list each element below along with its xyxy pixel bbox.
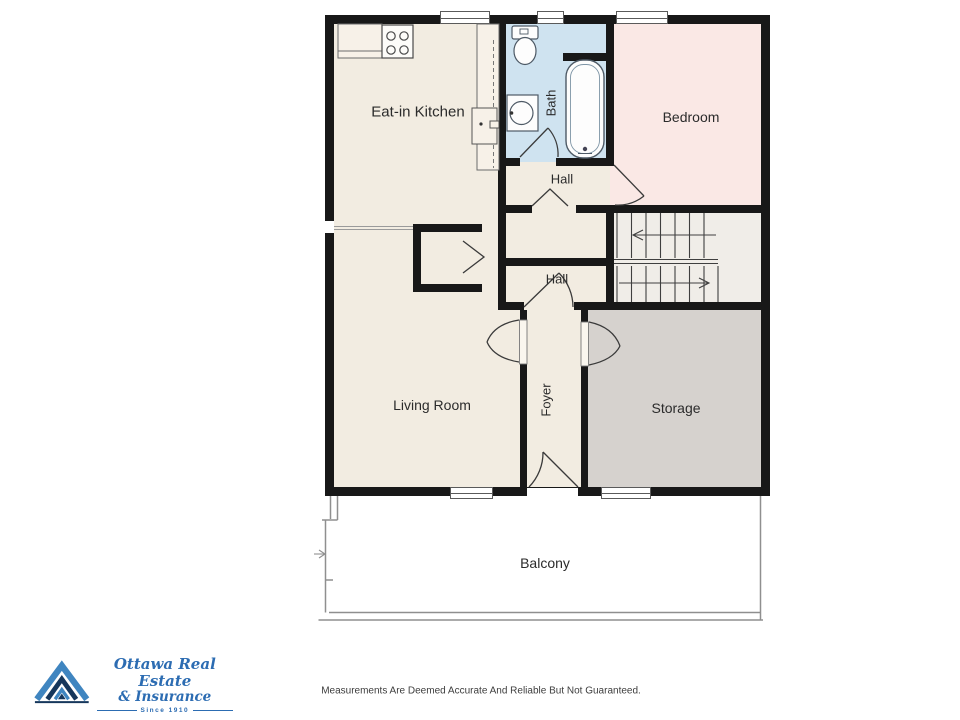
floor-storage (582, 306, 766, 492)
wall-foyer-left-a (520, 310, 527, 320)
room-label-storage: Storage (651, 400, 700, 416)
wall-outer-right (761, 15, 770, 496)
window-storage (601, 487, 651, 499)
wall-foyer-left-b (520, 364, 527, 496)
wall-foyer-right-b (581, 366, 588, 496)
wall-foyer-top-a (498, 302, 524, 310)
tagline-text: Since 1910 (141, 707, 190, 714)
window-bedroom (616, 11, 668, 24)
wall-landing-bottom (498, 258, 614, 266)
balcony-door-opening (527, 488, 578, 496)
window-living (450, 487, 493, 499)
wall-tub-top (563, 53, 614, 61)
room-label-hall-lower: Hall (546, 272, 568, 287)
brokerage-tagline: Since 1910 (97, 707, 233, 714)
wall-bath-bottom-b (556, 158, 614, 166)
wall-bath-bottom-a (498, 158, 520, 166)
wall-foyer-top-b (574, 302, 770, 310)
wall-hall-bedroom-a (498, 205, 532, 213)
room-label-balcony: Balcony (520, 555, 570, 571)
window-bath (537, 11, 564, 24)
wall-closet-left (413, 224, 421, 292)
room-label-bedroom: Bedroom (663, 109, 720, 125)
tagline-rule-right (193, 710, 233, 711)
floor-plan: Eat-in Kitchen Bath Bedroom Hall Hall Li… (0, 0, 960, 720)
wall-closet-top (413, 224, 482, 232)
room-label-foyer: Foyer (539, 383, 554, 416)
wall-closet-bottom (413, 284, 482, 292)
brokerage-name-line2: & Insurance (97, 690, 233, 705)
room-label-hall-upper: Hall (551, 172, 573, 187)
mountain-logo-icon (33, 656, 91, 706)
brokerage-name: Ottawa Real Estate & Insurance Since 191… (97, 656, 233, 714)
window-kitchen (440, 11, 490, 24)
left-wall-opening (325, 221, 334, 233)
wall-bath-bedroom (606, 15, 614, 164)
wall-outer-left (325, 15, 334, 496)
room-label-kitchen: Eat-in Kitchen (371, 104, 464, 121)
brokerage-logo: Ottawa Real Estate & Insurance Since 191… (33, 656, 233, 714)
wall-foyer-right-a (581, 310, 588, 322)
measurement-disclaimer: Measurements Are Deemed Accurate And Rel… (321, 686, 641, 697)
wall-stairs-left (606, 205, 614, 310)
tagline-rule-left (97, 710, 137, 711)
room-label-bath: Bath (544, 90, 559, 117)
balcony-gate-arrow (314, 550, 325, 558)
room-label-living: Living Room (393, 397, 471, 413)
brokerage-name-line1: Ottawa Real Estate (97, 656, 233, 690)
floor-stairwell (610, 207, 766, 306)
